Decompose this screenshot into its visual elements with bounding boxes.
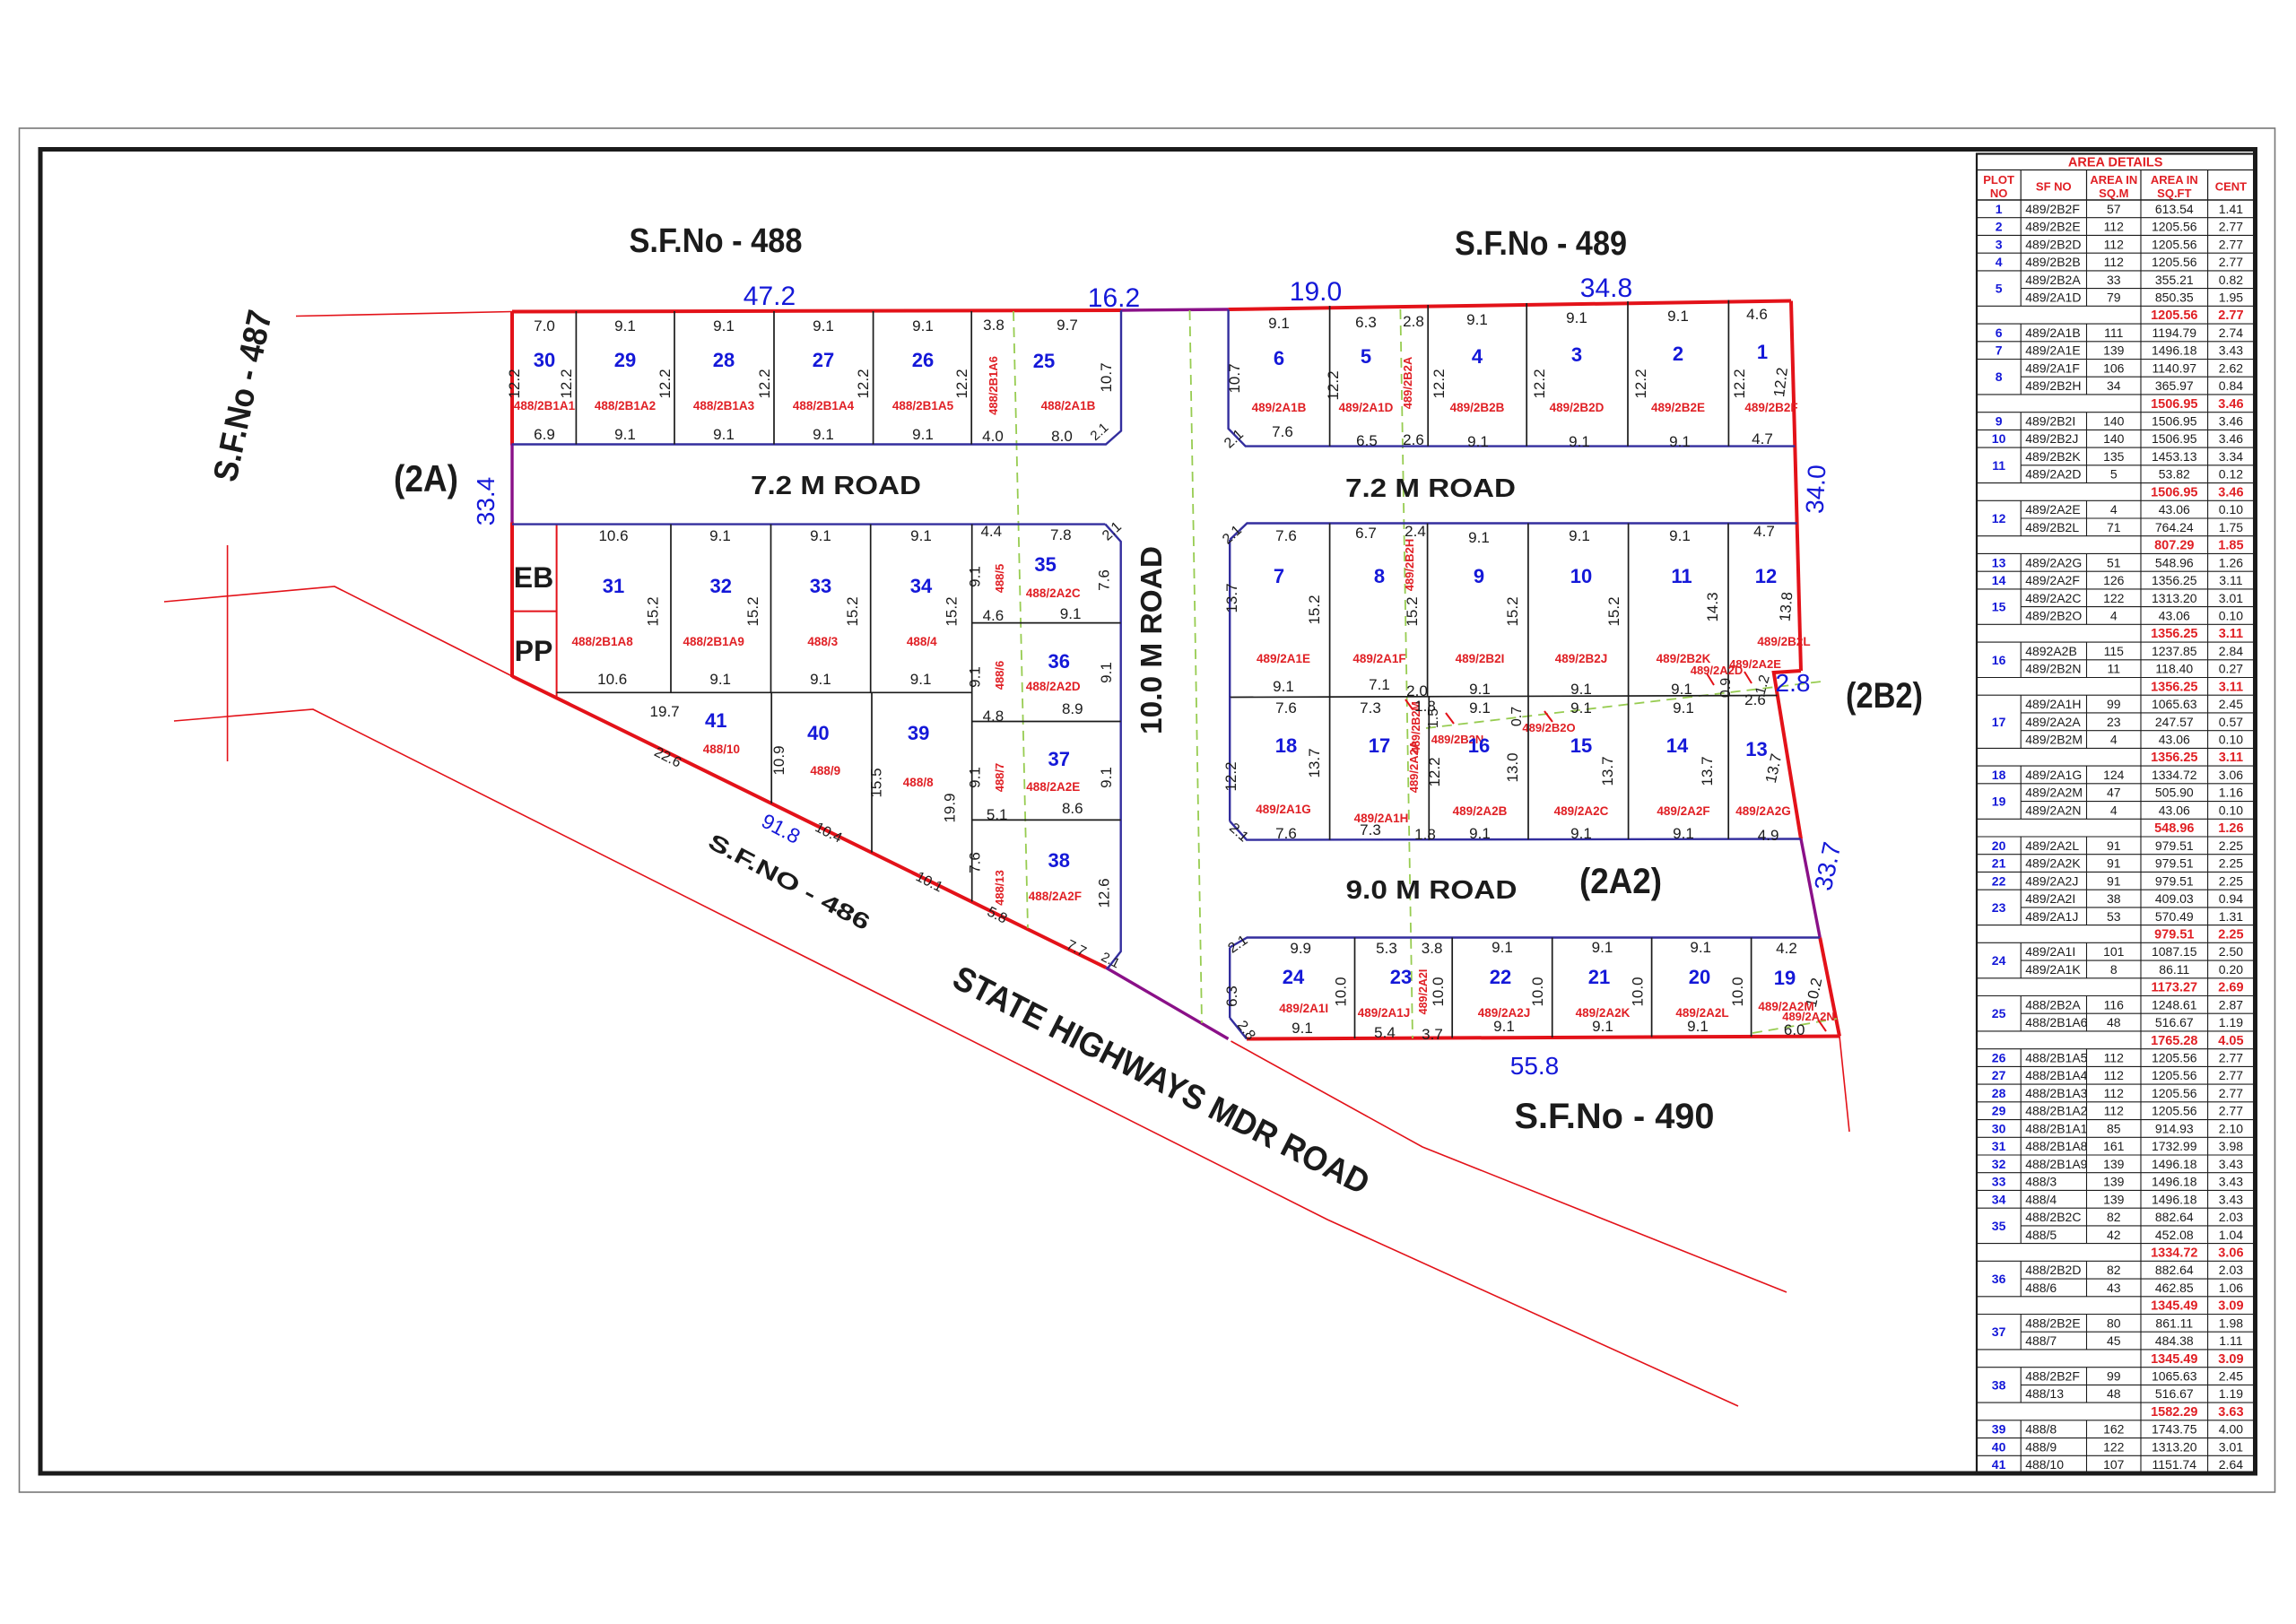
svg-text:2.8: 2.8: [1776, 669, 1811, 697]
svg-text:30: 30: [1992, 1121, 2006, 1135]
svg-text:19: 19: [1774, 967, 1796, 989]
svg-text:1506.95: 1506.95: [2152, 431, 2197, 446]
svg-text:9.1: 9.1: [1469, 681, 1491, 698]
svg-text:36: 36: [1992, 1272, 2006, 1286]
svg-text:9.1: 9.1: [1669, 433, 1691, 450]
svg-text:489/2B2A: 489/2B2A: [2025, 273, 2081, 287]
svg-text:489/2A1F: 489/2A1F: [1352, 652, 1405, 665]
svg-text:8: 8: [1996, 369, 2003, 384]
svg-text:488/2B1A4: 488/2B1A4: [793, 399, 855, 413]
svg-text:1496.18: 1496.18: [2152, 343, 2197, 358]
svg-text:3.43: 3.43: [2219, 1175, 2243, 1189]
svg-text:53.82: 53.82: [2159, 467, 2190, 482]
svg-text:15.2: 15.2: [1404, 596, 1421, 626]
svg-text:1205.56: 1205.56: [2151, 308, 2197, 323]
svg-text:17: 17: [1369, 734, 1390, 757]
svg-text:26: 26: [1992, 1051, 2006, 1065]
svg-text:99: 99: [2107, 697, 2121, 711]
svg-text:4: 4: [2110, 609, 2118, 623]
svg-text:6.9: 6.9: [534, 426, 555, 443]
svg-text:27: 27: [813, 349, 834, 371]
svg-text:1506.95: 1506.95: [2151, 397, 2197, 412]
svg-text:2.87: 2.87: [2219, 997, 2243, 1012]
svg-text:488/9: 488/9: [2025, 1439, 2057, 1454]
svg-text:4.05: 4.05: [2218, 1034, 2243, 1048]
svg-text:15: 15: [1992, 600, 2006, 614]
svg-text:18: 18: [1992, 768, 2006, 782]
svg-text:9.1: 9.1: [1466, 311, 1488, 328]
svg-text:2.4: 2.4: [1405, 523, 1426, 540]
svg-text:489/2B2I: 489/2B2I: [1456, 652, 1505, 665]
svg-text:9.1: 9.1: [1060, 605, 1082, 622]
svg-text:488/2B1A2: 488/2B1A2: [595, 399, 656, 413]
svg-text:(2A): (2A): [394, 457, 458, 499]
svg-text:26: 26: [912, 349, 934, 371]
svg-text:488/2B2D: 488/2B2D: [2025, 1263, 2081, 1277]
svg-text:3.01: 3.01: [2219, 591, 2243, 605]
svg-text:2.25: 2.25: [2219, 838, 2243, 853]
svg-text:7.6: 7.6: [966, 852, 983, 873]
svg-text:14: 14: [1992, 573, 2006, 587]
svg-text:3.8: 3.8: [983, 317, 1004, 334]
svg-text:3.43: 3.43: [2219, 1157, 2243, 1171]
svg-text:3.43: 3.43: [2219, 1192, 2243, 1206]
svg-text:1732.99: 1732.99: [2152, 1139, 2197, 1153]
svg-text:12.2: 12.2: [1531, 369, 1548, 398]
svg-text:2.45: 2.45: [2219, 1369, 2243, 1384]
svg-text:570.49: 570.49: [2155, 909, 2194, 924]
svg-text:12: 12: [1992, 511, 2006, 525]
svg-text:489/2A2F: 489/2A2F: [2025, 573, 2080, 587]
svg-text:488/13: 488/13: [993, 870, 1006, 906]
svg-text:0.10: 0.10: [2219, 609, 2243, 623]
svg-text:12.2: 12.2: [506, 369, 523, 398]
svg-text:3.09: 3.09: [2218, 1352, 2243, 1367]
svg-text:489/2A1B: 489/2A1B: [1252, 401, 1307, 414]
svg-text:4.6: 4.6: [1746, 306, 1768, 323]
svg-text:112: 112: [2104, 1104, 2125, 1118]
svg-text:2.64: 2.64: [2219, 1457, 2243, 1472]
svg-text:122: 122: [2103, 591, 2125, 605]
svg-text:488/6: 488/6: [2025, 1281, 2057, 1295]
svg-text:9.1: 9.1: [1570, 825, 1592, 842]
svg-text:3.11: 3.11: [2219, 680, 2243, 694]
svg-text:5.3: 5.3: [1376, 940, 1397, 957]
svg-text:489/2B2E: 489/2B2E: [2025, 220, 2081, 234]
svg-text:12.2: 12.2: [1770, 367, 1791, 398]
svg-text:18: 18: [1275, 734, 1297, 757]
svg-text:8: 8: [2110, 962, 2118, 977]
svg-text:882.64: 882.64: [2155, 1210, 2194, 1224]
svg-text:112: 112: [2104, 1086, 2125, 1100]
svg-text:488/2B2E: 488/2B2E: [2025, 1316, 2081, 1330]
svg-text:9: 9: [1996, 414, 2003, 429]
svg-text:7.3: 7.3: [1360, 821, 1381, 838]
svg-text:462.85: 462.85: [2155, 1281, 2194, 1295]
svg-text:488/2B1A6: 488/2B1A6: [987, 356, 1000, 415]
svg-text:9.1: 9.1: [1469, 825, 1491, 842]
svg-text:16: 16: [1992, 653, 2006, 667]
svg-text:2.77: 2.77: [2218, 308, 2243, 323]
svg-text:107: 107: [2103, 1457, 2125, 1472]
svg-text:AREA IN: AREA IN: [2090, 173, 2137, 187]
svg-text:10.0: 10.0: [1729, 977, 1746, 1006]
svg-text:488/2B2C: 488/2B2C: [2025, 1210, 2081, 1224]
svg-text:9.1: 9.1: [713, 426, 735, 443]
svg-text:2.03: 2.03: [2219, 1263, 2243, 1277]
svg-text:1496.18: 1496.18: [2152, 1175, 2197, 1189]
svg-text:3.11: 3.11: [2219, 627, 2243, 641]
svg-text:10.9: 10.9: [770, 745, 787, 775]
svg-text:106: 106: [2103, 360, 2125, 375]
svg-text:1506.95: 1506.95: [2152, 414, 2197, 429]
svg-text:489/2B2F: 489/2B2F: [2025, 202, 2080, 216]
svg-text:10.6: 10.6: [598, 527, 628, 544]
svg-text:51: 51: [2107, 555, 2121, 569]
svg-text:80: 80: [2107, 1316, 2121, 1330]
svg-text:23: 23: [1390, 966, 1412, 988]
svg-text:7.8: 7.8: [1050, 526, 1072, 543]
svg-text:764.24: 764.24: [2155, 520, 2194, 534]
svg-text:7.6: 7.6: [1096, 569, 1113, 591]
svg-text:9.1: 9.1: [810, 671, 831, 688]
svg-text:6: 6: [1996, 326, 2003, 340]
svg-text:3.11: 3.11: [2219, 751, 2243, 765]
svg-text:9.1: 9.1: [1669, 527, 1691, 544]
svg-text:15.2: 15.2: [1306, 595, 1323, 624]
svg-text:13.8: 13.8: [1777, 591, 1796, 622]
svg-text:28: 28: [1992, 1086, 2006, 1100]
svg-text:3.09: 3.09: [2218, 1299, 2243, 1314]
svg-text:489/2B2J: 489/2B2J: [2025, 431, 2078, 446]
svg-text:489/2A1G: 489/2A1G: [2025, 768, 2082, 782]
svg-text:488/9: 488/9: [810, 764, 840, 777]
svg-text:2.77: 2.77: [2219, 1104, 2243, 1118]
svg-text:4.0: 4.0: [982, 428, 1004, 445]
svg-text:9.1: 9.1: [912, 426, 934, 443]
svg-text:489/2A2C: 489/2A2C: [2025, 591, 2081, 605]
svg-text:489/2A2E: 489/2A2E: [2025, 502, 2081, 517]
svg-text:139: 139: [2103, 343, 2125, 358]
svg-text:2.77: 2.77: [2219, 1068, 2243, 1082]
svg-text:613.54: 613.54: [2155, 202, 2194, 216]
svg-text:2.77: 2.77: [2219, 1051, 2243, 1065]
svg-text:9.1: 9.1: [813, 426, 834, 443]
svg-text:SF NO: SF NO: [2036, 180, 2072, 194]
svg-text:4: 4: [2110, 803, 2118, 817]
svg-text:12.2: 12.2: [1325, 370, 1342, 400]
svg-text:12.2: 12.2: [1426, 757, 1443, 786]
svg-text:1313.20: 1313.20: [2152, 1439, 2197, 1454]
svg-text:7.3: 7.3: [1360, 699, 1381, 716]
svg-text:25: 25: [1033, 350, 1055, 372]
svg-text:15.5: 15.5: [868, 768, 885, 797]
svg-text:5: 5: [1361, 345, 1371, 368]
svg-text:9.1: 9.1: [1467, 433, 1489, 450]
svg-text:14: 14: [1666, 734, 1689, 757]
svg-text:32: 32: [709, 575, 731, 597]
svg-text:1313.20: 1313.20: [2152, 591, 2197, 605]
svg-text:43.06: 43.06: [2159, 803, 2190, 817]
svg-text:PLOT: PLOT: [1983, 173, 2014, 187]
svg-text:882.64: 882.64: [2155, 1263, 2194, 1277]
svg-text:861.11: 861.11: [2155, 1316, 2193, 1330]
svg-text:140: 140: [2103, 414, 2125, 429]
svg-text:489/2A2M: 489/2A2M: [2025, 786, 2083, 800]
svg-text:15.2: 15.2: [645, 596, 662, 626]
svg-text:489/2B2B: 489/2B2B: [2025, 255, 2081, 269]
svg-text:489/2A2K: 489/2A2K: [2025, 856, 2081, 871]
svg-text:82: 82: [2107, 1263, 2121, 1277]
svg-text:10.6: 10.6: [597, 671, 627, 688]
svg-text:27: 27: [1992, 1068, 2006, 1082]
svg-text:41: 41: [705, 709, 726, 732]
svg-text:57: 57: [2107, 202, 2121, 216]
svg-text:53: 53: [2107, 909, 2121, 924]
svg-text:1453.13: 1453.13: [2152, 449, 2197, 464]
svg-text:4.00: 4.00: [2219, 1422, 2243, 1437]
svg-text:488/6: 488/6: [993, 661, 1006, 690]
svg-text:9.7: 9.7: [1057, 317, 1078, 334]
svg-text:488/2B2A: 488/2B2A: [2025, 997, 2081, 1012]
svg-text:126: 126: [2103, 573, 2125, 587]
svg-text:1205.56: 1205.56: [2152, 1068, 2197, 1082]
svg-text:3: 3: [1571, 343, 1582, 366]
svg-text:12.2: 12.2: [953, 369, 970, 398]
svg-text:6.0: 6.0: [1784, 1021, 1805, 1038]
svg-text:7.2 M ROAD: 7.2 M ROAD: [751, 472, 921, 500]
svg-text:1.31: 1.31: [2219, 909, 2243, 924]
svg-text:2.84: 2.84: [2219, 644, 2243, 658]
svg-text:112: 112: [2104, 1051, 2125, 1065]
svg-text:47.2: 47.2: [744, 282, 796, 311]
svg-text:9.1: 9.1: [1570, 699, 1592, 716]
svg-text:9.9: 9.9: [1290, 940, 1311, 957]
svg-text:4.6: 4.6: [983, 607, 1004, 624]
svg-text:EB: EB: [514, 561, 553, 594]
svg-text:548.96: 548.96: [2155, 555, 2194, 569]
svg-text:19.7: 19.7: [650, 703, 680, 720]
svg-text:139: 139: [2103, 1157, 2125, 1171]
svg-text:9.1: 9.1: [1492, 939, 1513, 956]
svg-text:91: 91: [2107, 856, 2121, 871]
svg-text:2.62: 2.62: [2219, 360, 2243, 375]
svg-text:355.21: 355.21: [2155, 273, 2194, 287]
svg-text:AREA IN: AREA IN: [2151, 173, 2198, 187]
svg-text:979.51: 979.51: [2154, 928, 2194, 942]
svg-text:5.4: 5.4: [1374, 1024, 1396, 1041]
svg-text:15.2: 15.2: [1605, 596, 1622, 626]
svg-text:1205.56: 1205.56: [2152, 1051, 2197, 1065]
svg-text:9.1: 9.1: [966, 666, 983, 688]
svg-text:36: 36: [1048, 650, 1069, 673]
svg-text:33: 33: [2107, 273, 2121, 287]
svg-text:3.63: 3.63: [2218, 1405, 2243, 1420]
svg-text:30: 30: [534, 349, 555, 371]
svg-text:42: 42: [2107, 1228, 2121, 1242]
svg-text:9.1: 9.1: [1566, 309, 1587, 326]
svg-text:0.9: 0.9: [1718, 678, 1734, 698]
svg-text:9.1: 9.1: [713, 317, 735, 334]
svg-text:1.06: 1.06: [2219, 1281, 2243, 1295]
svg-text:488/2B1A8: 488/2B1A8: [2025, 1139, 2087, 1153]
svg-text:1065.63: 1065.63: [2152, 697, 2197, 711]
svg-text:489/2B2D: 489/2B2D: [2025, 237, 2081, 251]
svg-text:488/3: 488/3: [2025, 1175, 2057, 1189]
svg-text:1205.56: 1205.56: [2152, 237, 2197, 251]
svg-text:1248.61: 1248.61: [2152, 997, 2197, 1012]
svg-text:489/2B2N: 489/2B2N: [2025, 662, 2081, 676]
svg-text:6.3: 6.3: [1223, 986, 1240, 1007]
svg-text:2.25: 2.25: [2219, 856, 2243, 871]
svg-text:NO: NO: [1990, 187, 2008, 200]
svg-text:9.1: 9.1: [1268, 315, 1290, 332]
svg-text:22: 22: [1490, 966, 1511, 988]
svg-text:9.1: 9.1: [813, 317, 834, 334]
svg-text:489/2B2F: 489/2B2F: [1744, 401, 1797, 414]
svg-text:4: 4: [1472, 345, 1483, 368]
svg-text:2.03: 2.03: [2219, 1210, 2243, 1224]
svg-text:13.7: 13.7: [1306, 748, 1323, 777]
svg-text:1582.29: 1582.29: [2151, 1405, 2197, 1420]
svg-text:1205.56: 1205.56: [2152, 1104, 2197, 1118]
svg-text:35: 35: [1992, 1219, 2006, 1233]
svg-text:1.16: 1.16: [2219, 786, 2243, 800]
svg-text:505.90: 505.90: [2155, 786, 2194, 800]
svg-text:(2A2): (2A2): [1579, 862, 1662, 901]
svg-text:19.9: 19.9: [942, 793, 959, 822]
svg-text:2.69: 2.69: [2218, 981, 2243, 995]
svg-text:2: 2: [1996, 220, 2003, 234]
svg-text:24: 24: [1283, 966, 1305, 988]
svg-text:43.06: 43.06: [2159, 502, 2190, 517]
svg-text:488/2A2F: 488/2A2F: [1029, 890, 1082, 903]
svg-text:2.77: 2.77: [2219, 237, 2243, 251]
svg-text:807.29: 807.29: [2154, 539, 2194, 553]
svg-text:9.1: 9.1: [910, 527, 932, 544]
svg-text:979.51: 979.51: [2155, 856, 2194, 871]
svg-text:22: 22: [1992, 873, 2006, 888]
svg-text:488/2B1A9: 488/2B1A9: [2025, 1157, 2087, 1171]
svg-text:1173.27: 1173.27: [2151, 981, 2197, 995]
svg-text:6.5: 6.5: [1356, 432, 1378, 449]
svg-text:4.8: 4.8: [983, 708, 1004, 725]
svg-text:12: 12: [1755, 565, 1777, 587]
svg-text:489/2B2J: 489/2B2J: [1555, 652, 1608, 665]
svg-text:1.75: 1.75: [2219, 520, 2243, 534]
svg-text:3.46: 3.46: [2218, 397, 2243, 412]
svg-text:118.40: 118.40: [2155, 662, 2193, 676]
svg-text:9.1: 9.1: [1667, 308, 1689, 325]
svg-text:489/2A2I: 489/2A2I: [2025, 891, 2075, 906]
svg-text:3.46: 3.46: [2219, 431, 2243, 446]
svg-text:0.12: 0.12: [2219, 467, 2243, 482]
svg-text:489/2A1K: 489/2A1K: [2025, 962, 2081, 977]
svg-text:10.0 M ROAD: 10.0 M ROAD: [1135, 546, 1168, 734]
svg-text:13: 13: [1745, 738, 1767, 760]
svg-text:47: 47: [2107, 786, 2121, 800]
svg-text:1194.79: 1194.79: [2152, 326, 2197, 340]
svg-text:2: 2: [1673, 343, 1683, 365]
svg-text:9.1: 9.1: [1673, 699, 1694, 716]
svg-text:488/8: 488/8: [903, 776, 934, 789]
svg-text:25: 25: [1992, 1006, 2006, 1020]
svg-text:21: 21: [1992, 856, 2006, 871]
svg-text:34: 34: [1992, 1192, 2006, 1206]
svg-text:9.1: 9.1: [614, 426, 636, 443]
svg-text:10.7: 10.7: [1226, 363, 1243, 393]
svg-text:124: 124: [2103, 768, 2125, 782]
svg-text:1.95: 1.95: [2219, 291, 2243, 305]
svg-text:2.74: 2.74: [2219, 326, 2243, 340]
svg-text:12.2: 12.2: [855, 369, 872, 398]
svg-text:43.06: 43.06: [2159, 733, 2190, 747]
svg-text:40: 40: [807, 722, 829, 744]
svg-text:7.6: 7.6: [1275, 527, 1297, 544]
svg-text:9.1: 9.1: [1468, 529, 1490, 546]
svg-text:9.1: 9.1: [1098, 767, 1115, 788]
svg-text:1205.56: 1205.56: [2152, 255, 2197, 269]
svg-text:28: 28: [713, 349, 735, 371]
svg-text:37: 37: [1048, 748, 1069, 770]
svg-text:488/2B1A1: 488/2B1A1: [2025, 1121, 2087, 1135]
svg-text:7.2 M ROAD: 7.2 M ROAD: [1345, 474, 1516, 503]
svg-text:2.45: 2.45: [2219, 697, 2243, 711]
svg-text:85: 85: [2107, 1121, 2121, 1135]
svg-text:5: 5: [1996, 282, 2003, 296]
svg-text:8.9: 8.9: [1062, 700, 1083, 717]
svg-text:10: 10: [1570, 565, 1592, 587]
svg-text:0.84: 0.84: [2219, 378, 2243, 393]
svg-text:19.0: 19.0: [1290, 277, 1342, 307]
svg-text:1496.18: 1496.18: [2152, 1192, 2197, 1206]
svg-text:489/2B2M: 489/2B2M: [2025, 733, 2083, 747]
svg-text:2.77: 2.77: [2219, 1086, 2243, 1100]
svg-text:12.2: 12.2: [1632, 369, 1649, 398]
svg-text:21: 21: [1588, 966, 1610, 988]
svg-text:139: 139: [2103, 1175, 2125, 1189]
svg-text:489/2A2A: 489/2A2A: [1407, 740, 1421, 793]
svg-text:1334.72: 1334.72: [2152, 768, 2197, 782]
svg-text:19: 19: [1992, 795, 2006, 809]
svg-text:79: 79: [2107, 291, 2121, 305]
svg-text:3: 3: [1996, 237, 2003, 251]
svg-text:8: 8: [1374, 565, 1385, 587]
svg-text:489/2A1I: 489/2A1I: [2025, 944, 2075, 959]
svg-text:489/2B2E: 489/2B2E: [1651, 401, 1705, 414]
svg-text:489/2A2D: 489/2A2D: [2025, 467, 2081, 482]
svg-text:488/2B1A4: 488/2B1A4: [2025, 1068, 2087, 1082]
svg-text:3.46: 3.46: [2219, 414, 2243, 429]
svg-text:2.25: 2.25: [2219, 873, 2243, 888]
svg-text:112: 112: [2104, 255, 2125, 269]
svg-text:489/2B2H: 489/2B2H: [1403, 539, 1416, 592]
svg-text:9.1: 9.1: [1569, 433, 1590, 450]
svg-text:1.11: 1.11: [2219, 1333, 2242, 1348]
svg-text:35: 35: [1034, 553, 1056, 576]
svg-text:161: 161: [2103, 1139, 2125, 1153]
svg-text:488/4: 488/4: [907, 635, 937, 648]
svg-text:488/2A2E: 488/2A2E: [1026, 780, 1080, 794]
svg-text:489/2B2K: 489/2B2K: [2025, 449, 2081, 464]
svg-text:489/2A2I: 489/2A2I: [1417, 969, 1430, 1015]
svg-text:488/8: 488/8: [2025, 1422, 2057, 1437]
svg-text:488/4: 488/4: [2025, 1192, 2057, 1206]
svg-text:488/2B2F: 488/2B2F: [2025, 1369, 2080, 1384]
svg-text:135: 135: [2103, 449, 2125, 464]
svg-text:489/2A1D: 489/2A1D: [1339, 401, 1394, 414]
svg-text:3.06: 3.06: [2218, 1246, 2243, 1261]
